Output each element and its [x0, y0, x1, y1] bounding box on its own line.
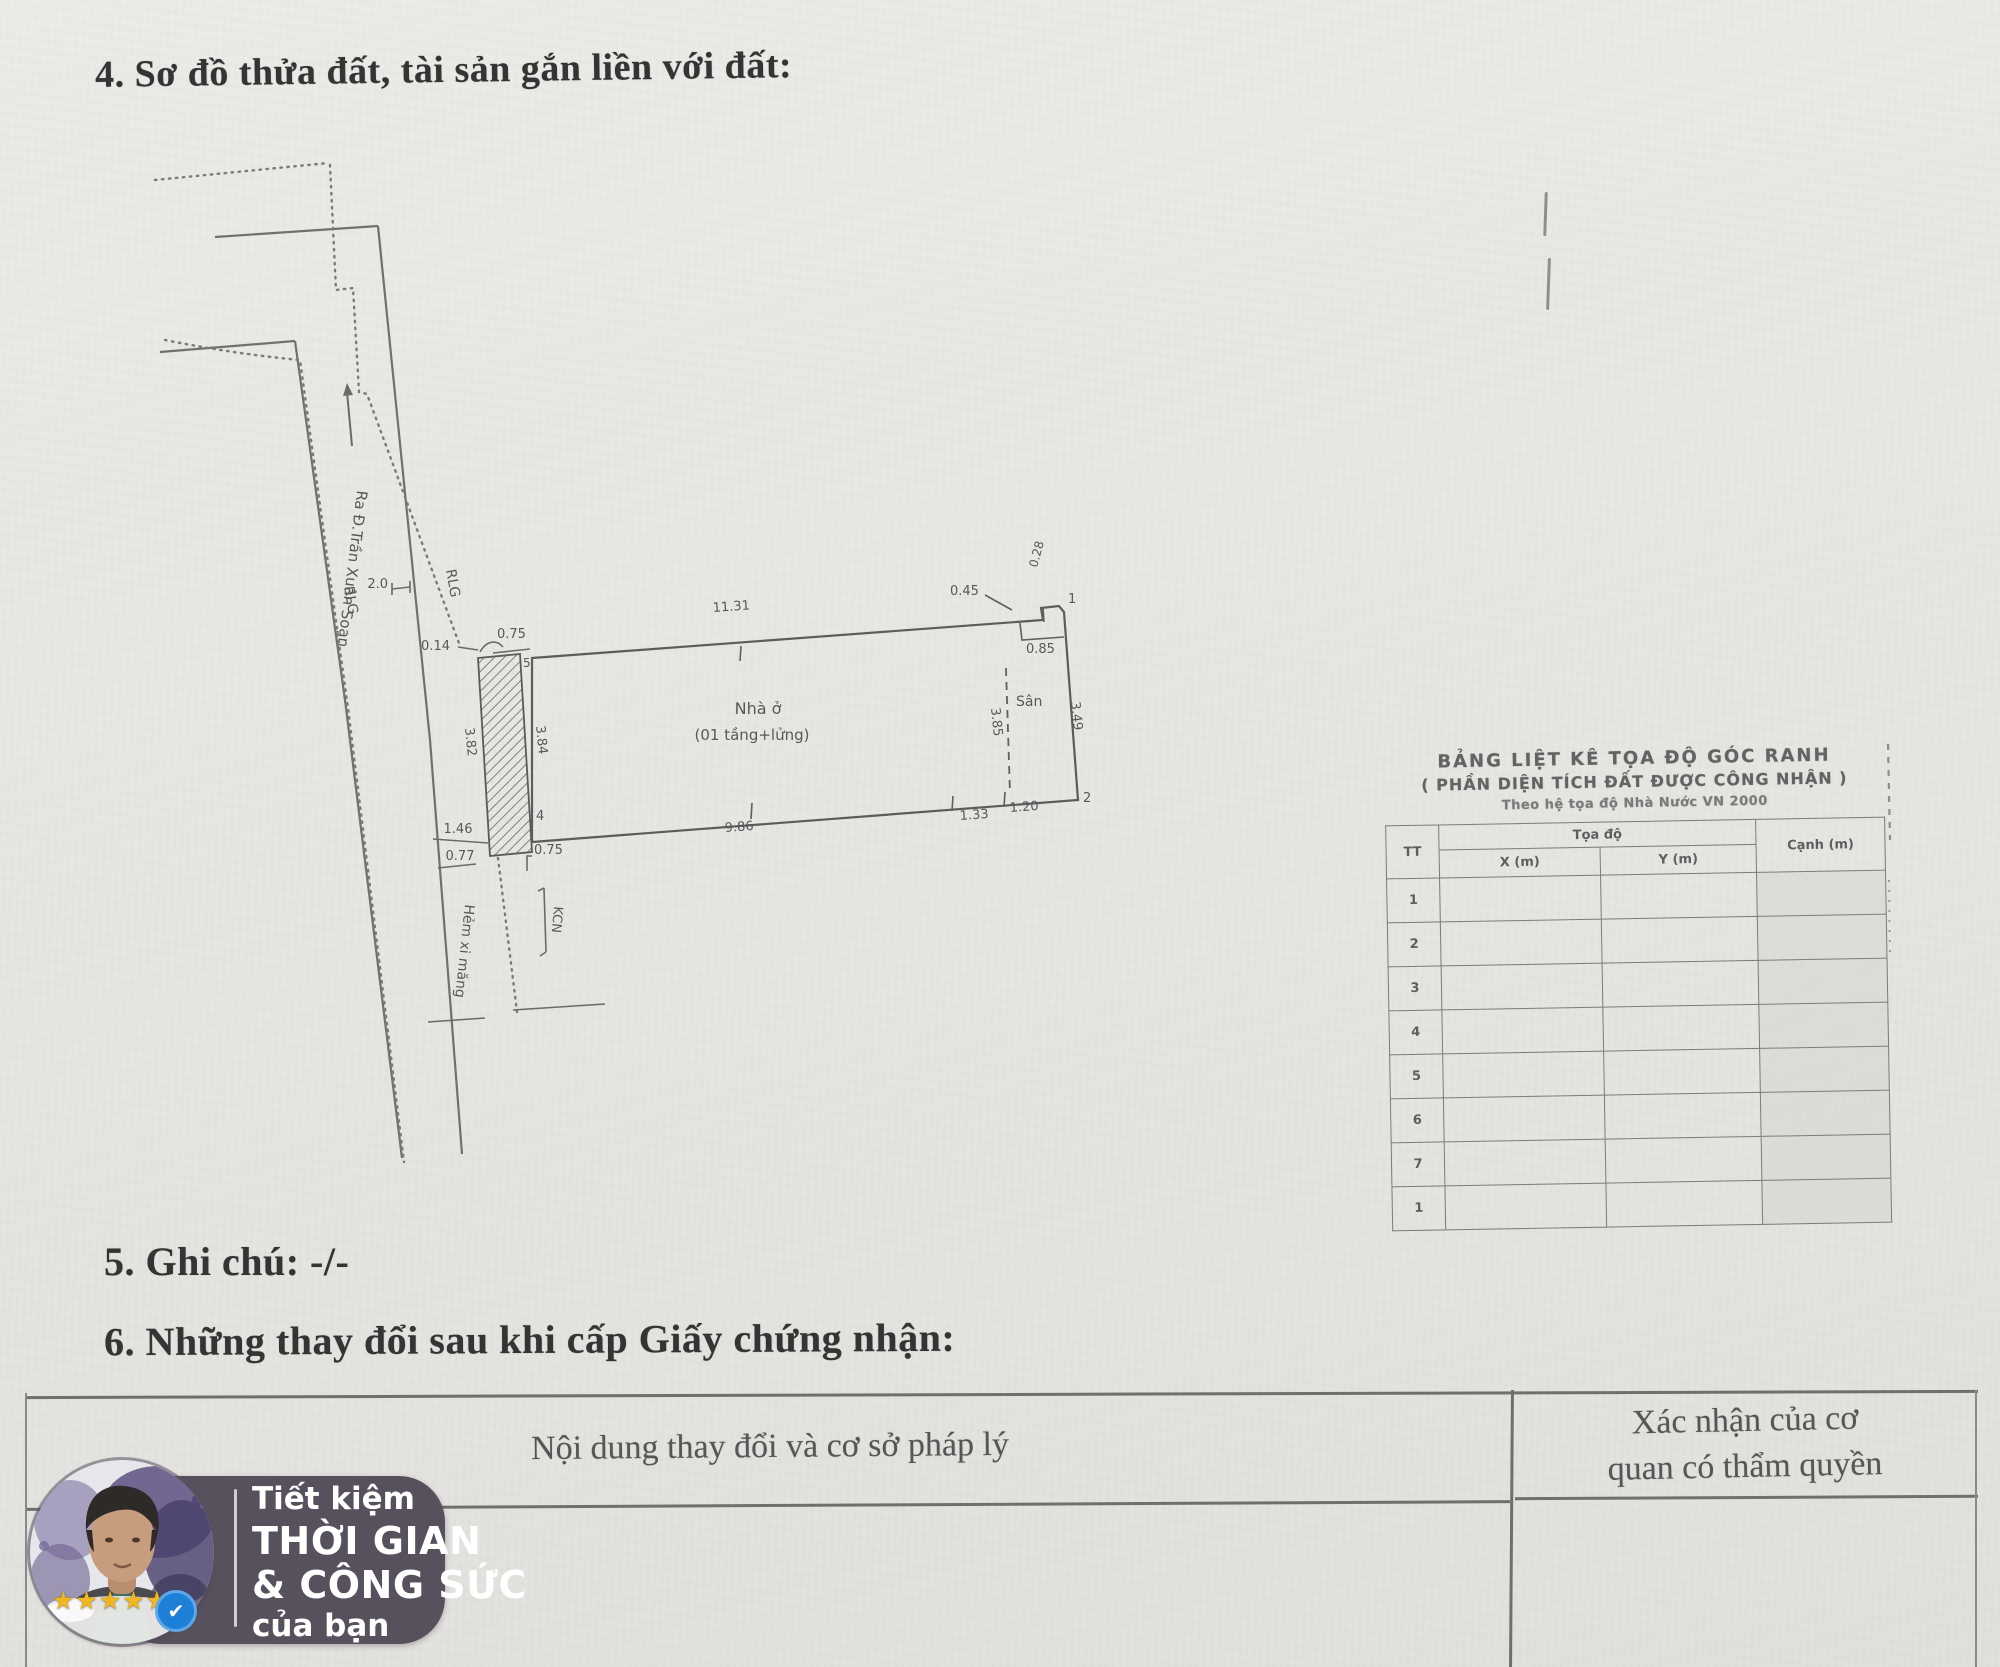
- dim-2.0: 2.0: [367, 577, 388, 592]
- rating-stars-icon: ★★★★★: [52, 1586, 169, 1616]
- dim-0.75-top-bracket: [480, 642, 530, 653]
- coord-table-note: Theo hệ tọa độ Nhà Nước VN 2000: [1375, 791, 1895, 815]
- point-5: 5: [523, 656, 531, 670]
- dim-1.33: 1.33: [959, 807, 989, 824]
- watermark-text-block: Tiết kiệm THỜI GIAN & CÔNG SỨC của bạn: [252, 1484, 527, 1642]
- plot-diagram: Ra Đ.Trần Xuân Soạn RLG RLG 2.0 0.14 0.7…: [140, 140, 1120, 1200]
- cell-y: [1601, 872, 1758, 919]
- dim-1.46: 1.46: [444, 822, 473, 837]
- boundary-dotted-lines: [155, 163, 517, 1162]
- cell-x: [1445, 1183, 1607, 1230]
- changes-col-right-header-line1: Xác nhận của cơ: [1530, 1398, 1961, 1445]
- dim-3.49: 3.49: [1067, 701, 1085, 731]
- cell-canh: [1758, 958, 1888, 1004]
- cell-canh: [1761, 1134, 1891, 1180]
- cell-y: [1601, 916, 1758, 963]
- section4-title: 4. Sơ đồ thửa đất, tài sản gắn liền với …: [95, 43, 793, 97]
- cell-x: [1440, 875, 1602, 922]
- san-divider-dashed: [1006, 668, 1010, 794]
- table-left-border: [25, 1393, 27, 1667]
- house-label: Nhà ở: [735, 699, 782, 718]
- alley-label: Hẻm xi măng: [451, 904, 477, 999]
- watermark-line4: của bạn: [252, 1611, 527, 1642]
- row-number: 2: [1387, 922, 1441, 967]
- dim-3.84: 3.84: [532, 725, 550, 755]
- verified-check-icon: ✔: [155, 1590, 197, 1632]
- dim-3.82: 3.82: [461, 727, 479, 757]
- table-right-border: [1975, 1390, 1977, 1667]
- col-header-canh: Cạnh (m): [1756, 817, 1886, 872]
- page-edge-mark: [1546, 258, 1551, 310]
- cell-canh: [1757, 914, 1887, 960]
- kcn-label: KCN: [548, 906, 565, 934]
- cell-x: [1444, 1139, 1606, 1186]
- watermark-line3: & CÔNG SỨC: [252, 1566, 527, 1604]
- dim-0.28: 0.28: [1026, 539, 1046, 568]
- table-header-underline-right: [1515, 1495, 1978, 1500]
- point-2: 2: [1083, 791, 1091, 806]
- col-header-tt: TT: [1386, 825, 1440, 879]
- dim-0.75-bottom: 0.75: [534, 843, 563, 858]
- cell-y: [1603, 1004, 1760, 1051]
- hatched-setback-strip: [478, 654, 532, 856]
- cell-x: [1443, 1095, 1605, 1142]
- dim-0.77: 0.77: [446, 849, 475, 864]
- changes-col-right-header-line2: quan có thẩm quyền: [1520, 1443, 1971, 1490]
- dim-0.85: 0.85: [1026, 642, 1055, 657]
- rlg-label-right: RLG: [442, 568, 463, 599]
- section6-title: 6. Những thay đổi sau khi cấp Giấy chứng…: [104, 1314, 956, 1365]
- coord-row: 1: [1392, 1178, 1892, 1231]
- dim-0.75-top: 0.75: [497, 627, 526, 642]
- dim-0.45: 0.45: [950, 584, 979, 599]
- watermark-line2: THỜI GIAN: [252, 1522, 527, 1560]
- coordinate-table: TT Tọa độ Cạnh (m) X (m) Y (m) 1 2 3 4: [1385, 817, 1892, 1232]
- row-number: 5: [1390, 1054, 1444, 1099]
- cell-x: [1440, 919, 1602, 966]
- nook-lines: [985, 595, 1064, 640]
- dim-3.85: 3.85: [987, 707, 1005, 737]
- cell-y: [1602, 960, 1759, 1007]
- row-number: 3: [1388, 966, 1442, 1011]
- dim-9.86: 9.86: [724, 819, 754, 836]
- table-column-divider: [1509, 1390, 1513, 1667]
- col-header-x: X (m): [1439, 848, 1600, 878]
- road-lines: [160, 226, 462, 1158]
- cell-y: [1605, 1136, 1762, 1183]
- street-label: Ra Đ.Trần Xuân Soạn: [334, 490, 371, 649]
- cell-y: [1604, 1092, 1761, 1139]
- house-sublabel: (01 tầng+lửng): [695, 726, 810, 744]
- point-1: 1: [1068, 592, 1076, 607]
- coordinate-table-block: BẢNG LIỆT KÊ TỌA ĐỘ GÓC RANH ( PHẦN DIỆN…: [1374, 743, 1902, 1231]
- table-top-border: [25, 1390, 1978, 1399]
- changes-col-left-header: Nội dung thay đổi và cơ sở pháp lý: [240, 1423, 1300, 1470]
- dim-11.31: 11.31: [712, 598, 750, 616]
- cell-y: [1604, 1048, 1761, 1095]
- cell-x: [1442, 1007, 1604, 1054]
- point-4: 4: [536, 809, 544, 824]
- row-number: 1: [1392, 1186, 1446, 1231]
- row-number: 1: [1387, 878, 1441, 923]
- cell-canh: [1759, 1002, 1889, 1048]
- row-number: 7: [1391, 1142, 1445, 1187]
- cell-canh: [1762, 1178, 1892, 1224]
- row-number: 6: [1390, 1098, 1444, 1143]
- watermark-divider: [234, 1489, 237, 1627]
- page-edge-mark: [1543, 192, 1548, 236]
- cell-canh: [1757, 870, 1887, 916]
- cell-canh: [1760, 1090, 1890, 1136]
- watermark-line1: Tiết kiệm: [252, 1484, 527, 1515]
- col-header-y: Y (m): [1600, 845, 1756, 875]
- dim-0.14-tick: [458, 647, 478, 650]
- dim-2.0-bracket: [392, 581, 410, 595]
- dim-0.14: 0.14: [421, 639, 450, 654]
- page-edge-dashes: [1880, 740, 1900, 1020]
- cell-y: [1606, 1180, 1763, 1227]
- cell-x: [1443, 1051, 1605, 1098]
- cell-canh: [1760, 1046, 1890, 1092]
- dim-1.20: 1.20: [1009, 799, 1039, 816]
- row-number: 4: [1389, 1010, 1443, 1055]
- section5-title: 5. Ghi chú: -/-: [104, 1238, 349, 1285]
- san-label: Sân: [1016, 694, 1042, 710]
- cell-x: [1441, 963, 1603, 1010]
